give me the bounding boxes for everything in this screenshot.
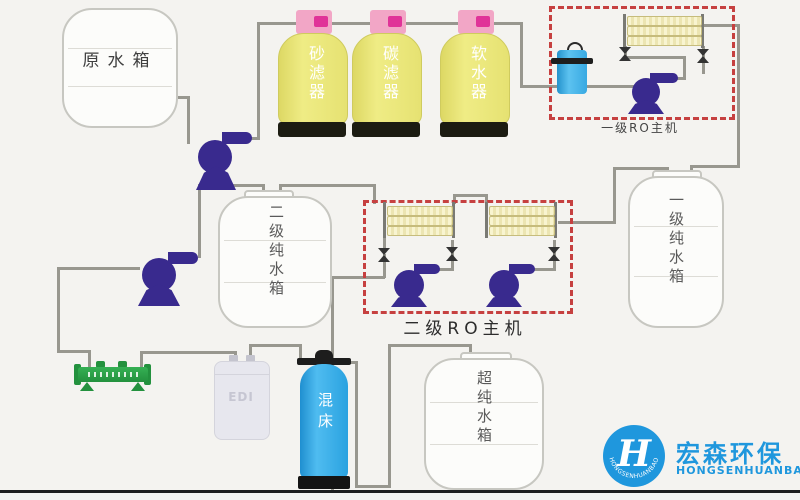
mixed-bed-label: 混床 — [315, 392, 336, 442]
pipe-segment — [613, 167, 616, 224]
pipe-segment — [355, 361, 358, 488]
pipe-segment — [690, 165, 740, 168]
valve-symbol — [446, 247, 459, 261]
pipe-segment — [453, 194, 488, 197]
pipe-segment — [520, 22, 523, 88]
tank-seam — [68, 86, 172, 87]
valve-symbol — [697, 49, 710, 63]
softener-label: 软水器 — [465, 45, 489, 121]
pipe-segment — [140, 351, 237, 354]
filter-valve-accent — [314, 16, 328, 27]
pipe-segment — [57, 267, 140, 270]
logo-mark: H HONGSENHUANBAO — [602, 424, 666, 488]
ultrapure-tank-label: 超纯水箱 — [474, 370, 495, 480]
cartridge-filter-band — [551, 58, 593, 64]
ro2-label: 二级RO主机 — [385, 314, 545, 339]
carbon-filter-label: 碳滤器 — [377, 45, 401, 121]
pipe-segment — [187, 96, 190, 144]
ro1-label: 一级RO主机 — [560, 119, 720, 136]
filter-valve-accent — [476, 16, 490, 27]
pipe-segment — [355, 485, 391, 488]
pipe-segment — [249, 344, 302, 347]
pipe-segment — [388, 344, 391, 488]
pipe-segment — [257, 22, 260, 140]
bottom-border-line — [0, 490, 800, 493]
stage2-pure-tank-label: 二级纯水箱 — [266, 204, 287, 322]
pipe-segment — [57, 350, 91, 353]
filter-valve-accent — [388, 16, 402, 27]
edi-label: EDI — [214, 390, 268, 404]
uv-sterilizer-markings — [88, 372, 138, 377]
raw-water-tank-label: 原水箱 — [62, 46, 178, 71]
pipe-segment — [388, 344, 472, 347]
pipe-segment — [88, 350, 91, 367]
pipe-segment — [198, 184, 201, 258]
sand-filter-label: 砂滤器 — [303, 45, 327, 121]
stage1-pure-tank-label: 一级纯水箱 — [666, 192, 687, 318]
pipe-segment — [737, 24, 740, 168]
pipe-segment — [57, 267, 60, 353]
water-treatment-diagram: 原水箱 砂滤器 碳滤器 软水器 — [0, 0, 800, 500]
pipe-segment — [279, 184, 376, 187]
logo-en-text: HONGSENHUANBAO — [676, 464, 800, 477]
valve-symbol — [619, 47, 632, 61]
valve-symbol — [548, 247, 561, 261]
valve-symbol — [378, 248, 391, 262]
